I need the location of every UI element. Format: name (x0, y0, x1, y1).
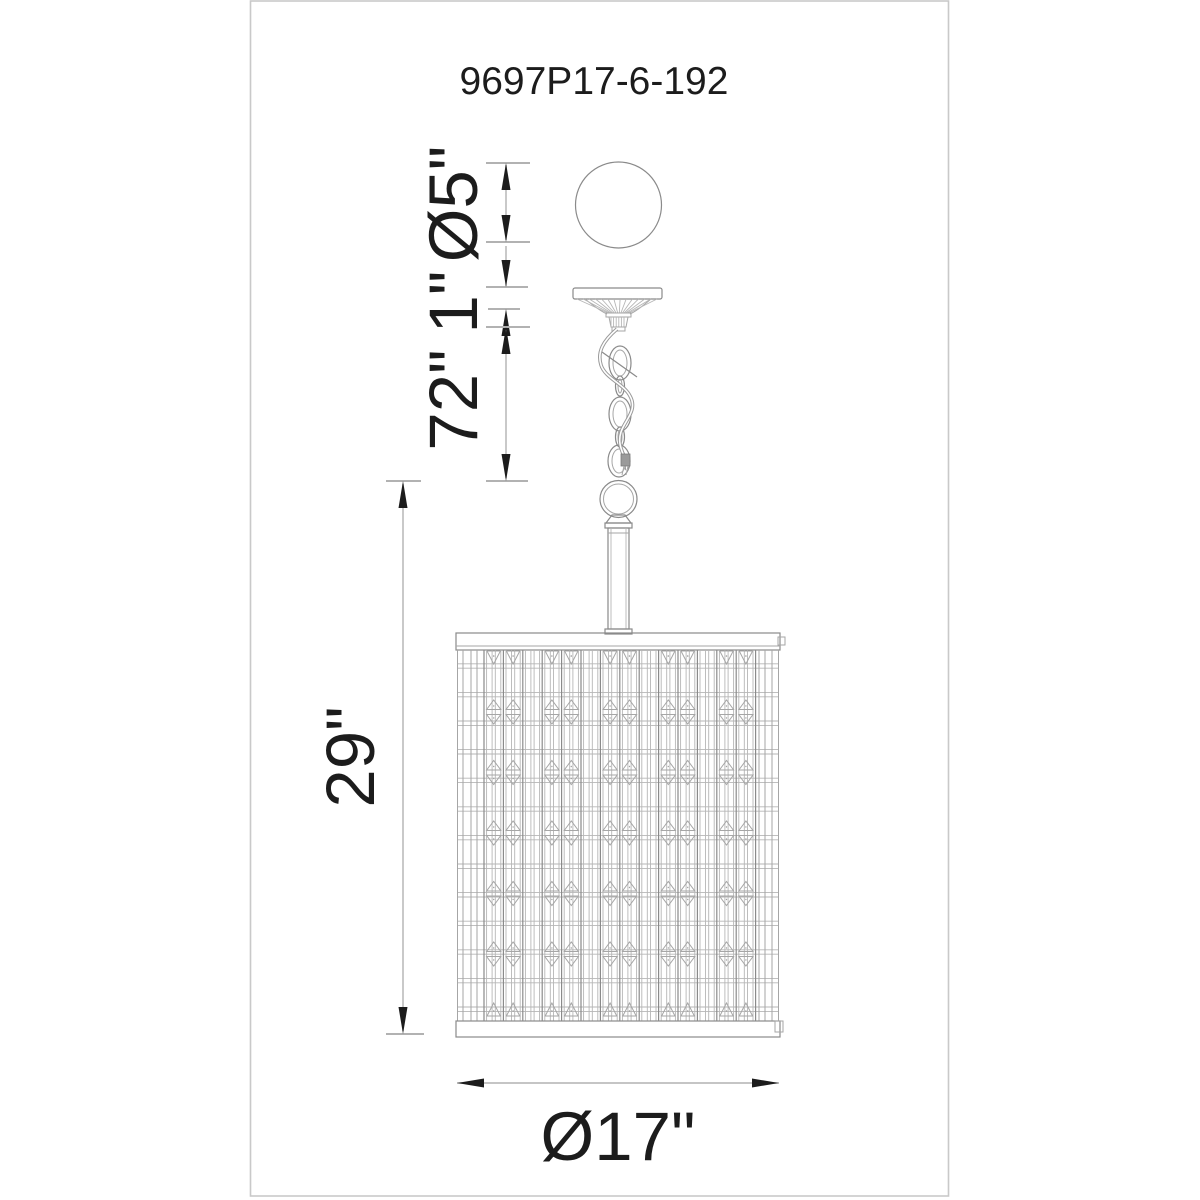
drawing-sheet: 9697P17-6-192 (0, 0, 1200, 1200)
facet-dot (668, 778, 669, 779)
crystal-top-chevron (623, 651, 636, 664)
dim-arrow-right (752, 1079, 779, 1088)
crystal-diamond-upper (506, 821, 520, 831)
facet-dot (493, 1010, 495, 1012)
crystal-top-chevron (487, 651, 500, 664)
crystal-diamond-upper (681, 821, 695, 831)
facet-dot (609, 838, 610, 839)
crystal-diamond-lower (545, 957, 559, 967)
facet-dot (493, 705, 494, 706)
facet-dot (668, 717, 669, 718)
facet-dot (571, 887, 572, 888)
facet-dot (551, 899, 552, 900)
facet-dot (512, 959, 513, 960)
crystal-diamond-lower (487, 775, 501, 785)
hang-ring-outer (600, 481, 637, 518)
facet-dot (629, 705, 630, 706)
facet-dot (629, 1010, 631, 1012)
chain-link (609, 397, 631, 431)
facet-dot (512, 705, 513, 706)
facet-dot (609, 705, 610, 706)
facet-dot (551, 887, 552, 888)
facet-dot (726, 838, 727, 839)
facet-dot (571, 705, 572, 706)
facet-dot (551, 959, 552, 960)
crystal-diamond-upper (564, 882, 578, 892)
canopy-flute-line (583, 299, 609, 313)
crystal-diamond-lower (603, 957, 617, 967)
dim-label-fixture-height: 29" (312, 706, 389, 807)
facet-dot (493, 717, 494, 718)
crystal-diamond-upper (739, 761, 753, 771)
crystal-diamond-upper (487, 700, 501, 710)
facet-dot (551, 838, 552, 839)
crystal-diamond-lower (739, 957, 753, 967)
facet-dot (609, 959, 610, 960)
facet-dot (726, 959, 727, 960)
facet-dot (745, 826, 746, 827)
facet-dot (609, 655, 611, 657)
cord-ferrule (621, 454, 630, 466)
crystal-top-chevron (681, 651, 694, 664)
facet-dot (745, 1010, 747, 1012)
crystal-bottom-chevron (739, 1003, 752, 1016)
crystal-diamond-upper (622, 761, 636, 771)
facet-dot (571, 826, 572, 827)
dimension-chain-length (486, 327, 530, 481)
facet-dot (668, 655, 670, 657)
crystal-diamond-lower (487, 957, 501, 967)
dim-label-chain-length: 72" (415, 349, 492, 450)
dim-label-shade-diameter: Ø17" (541, 1098, 696, 1175)
hanging-chain (600, 329, 637, 477)
facet-dot (726, 655, 728, 657)
canopy-flute-line (629, 299, 657, 313)
crystal-diamond-upper (739, 700, 753, 710)
facet-dot (571, 899, 572, 900)
dimension-canopy-diameter (486, 163, 530, 242)
crystal-bottom-chevron (623, 1003, 636, 1016)
facet-dot (687, 947, 688, 948)
crystal-diamond-lower (622, 957, 636, 967)
crystal-diamond-upper (739, 821, 753, 831)
dim-arrow-left (457, 1079, 484, 1088)
facet-dot (493, 887, 494, 888)
facet-dot (745, 959, 746, 960)
facet-dot (551, 655, 553, 657)
crystal-top-chevron (545, 651, 558, 664)
facet-dot (745, 655, 747, 657)
crystal-diamond-lower (681, 957, 695, 967)
crystal-diamond-lower (545, 715, 559, 725)
facet-dot (609, 826, 610, 827)
crystal-diamond-upper (603, 700, 617, 710)
facet-dot (687, 705, 688, 706)
crystal-diamond-upper (487, 761, 501, 771)
crystal-diamond-lower (564, 775, 578, 785)
canopy-side-view (573, 288, 662, 331)
crystal-bottom-chevron (662, 1003, 675, 1016)
facet-dot (512, 766, 513, 767)
crystal-diamond-lower (681, 775, 695, 785)
facet-dot (687, 826, 688, 827)
facet-dot (629, 717, 630, 718)
facet-dot (512, 947, 513, 948)
facet-dot (726, 766, 727, 767)
facet-dot (726, 717, 727, 718)
crystal-diamond-upper (603, 821, 617, 831)
facet-dot (609, 778, 610, 779)
facet-dot (629, 838, 630, 839)
crystal-diamond-lower (603, 775, 617, 785)
crystal-bottom-chevron (681, 1003, 694, 1016)
crystal-diamond-lower (719, 775, 733, 785)
facet-dot (571, 838, 572, 839)
ring-collar (605, 523, 632, 528)
facet-dot (668, 947, 669, 948)
facet-dot (629, 899, 630, 900)
shade-bottom-band-clip (775, 1021, 783, 1032)
chain-link (609, 346, 631, 380)
facet-dot (551, 705, 552, 706)
crystal-diamond-upper (681, 882, 695, 892)
crystal-diamond-upper (661, 882, 675, 892)
dimension-canopy-height (486, 246, 528, 336)
facet-dot (668, 1010, 670, 1012)
facet-dot (629, 947, 630, 948)
canopy-flute-line (619, 299, 620, 313)
canopy-fluting (577, 299, 657, 313)
facet-dot (687, 838, 688, 839)
crystal-diamond-lower (506, 775, 520, 785)
facet-dot (668, 826, 669, 827)
crystal-diamond-upper (661, 821, 675, 831)
shade-bottom-band (456, 1021, 780, 1037)
crystal-grid (457, 650, 779, 1021)
crystal-diamond-upper (487, 882, 501, 892)
crystal-diamond-upper (506, 700, 520, 710)
facet-dot (609, 947, 610, 948)
crystal-top-chevron (506, 651, 519, 664)
crystal-diamond-lower (564, 715, 578, 725)
facet-dot (551, 947, 552, 948)
facet-dot (609, 1010, 611, 1012)
facet-dot (668, 899, 669, 900)
facet-dot (551, 1010, 553, 1012)
facet-dot (745, 766, 746, 767)
facet-dot (571, 778, 572, 779)
crystal-diamond-upper (487, 821, 501, 831)
crystal-diamond-lower (739, 775, 753, 785)
socket-ribs (611, 317, 624, 327)
crystal-diamond-upper (622, 821, 636, 831)
crystal-diamond-upper (681, 761, 695, 771)
facet-dot (687, 778, 688, 779)
crystal-top-chevron (720, 651, 733, 664)
facet-dot (668, 959, 669, 960)
crystal-diamond-upper (681, 700, 695, 710)
facet-dot (551, 766, 552, 767)
product-code-text: 9697P17-6-192 (460, 60, 729, 103)
crystal-diamond-upper (506, 882, 520, 892)
canopy-socket-collar (606, 313, 631, 317)
facet-dot (726, 899, 727, 900)
pendant-spec-drawing: 9697P17-6-192 (0, 0, 1200, 1200)
crystal-diamond-lower (622, 715, 636, 725)
crystal-diamond-lower (719, 957, 733, 967)
shade-top-band (456, 633, 780, 650)
crystal-diamond-lower (719, 715, 733, 725)
crystal-diamond-lower (661, 775, 675, 785)
crystal-shade (456, 633, 785, 1037)
dim-label-canopy-height: 1" (415, 271, 492, 334)
facet-dot (493, 899, 494, 900)
facet-dot (726, 778, 727, 779)
dim-arrow-down (502, 215, 511, 242)
crystal-diamond-upper (603, 761, 617, 771)
facet-dot (512, 887, 513, 888)
ring-cup (606, 515, 631, 523)
facet-dot (609, 766, 610, 767)
crystal-top-chevron (565, 651, 578, 664)
facet-dot (493, 947, 494, 948)
facet-dot (493, 838, 494, 839)
facet-dot (745, 838, 746, 839)
crystal-diamond-upper (564, 821, 578, 831)
facet-dot (745, 705, 746, 706)
crystal-bottom-chevron (565, 1003, 578, 1016)
chain-link-inner (613, 350, 627, 376)
dim-arrow-down (502, 454, 511, 481)
facet-dot (687, 717, 688, 718)
crystal-diamond-lower (564, 957, 578, 967)
facet-dot (571, 766, 572, 767)
facet-dot (551, 826, 552, 827)
facet-dot (687, 655, 689, 657)
facet-dot (726, 887, 727, 888)
dimension-fixture-height (386, 481, 424, 1034)
crystal-diamond-upper (564, 700, 578, 710)
crystal-diamond-upper (661, 761, 675, 771)
facet-dot (745, 899, 746, 900)
facet-dot (745, 717, 746, 718)
facet-dot (629, 959, 630, 960)
crystal-diamond-lower (739, 715, 753, 725)
facet-dot (609, 887, 610, 888)
facet-dot (571, 655, 573, 657)
crystal-diamond-upper (719, 821, 733, 831)
facet-dot (668, 766, 669, 767)
crystal-diamond-lower (506, 715, 520, 725)
crystal-diamond-upper (603, 882, 617, 892)
crystal-diamond-upper (739, 882, 753, 892)
facet-dot (512, 899, 513, 900)
facet-dot (493, 959, 494, 960)
facet-dot (668, 887, 669, 888)
facet-dot (726, 826, 727, 827)
dim-label-canopy-diameter: Ø5" (415, 146, 492, 263)
facet-dot (493, 766, 494, 767)
facet-dot (512, 717, 513, 718)
facet-dot (629, 778, 630, 779)
facet-dot (745, 887, 746, 888)
facet-dot (726, 705, 727, 706)
dim-arrow-up (502, 163, 511, 190)
facet-dot (629, 887, 630, 888)
crystal-top-chevron (662, 651, 675, 664)
facet-dot (687, 887, 688, 888)
crystal-diamond-upper (719, 761, 733, 771)
facet-dot (493, 778, 494, 779)
crystal-diamond-upper (545, 882, 559, 892)
crystal-diamond-upper (719, 700, 733, 710)
crystal-bottom-chevron (545, 1003, 558, 1016)
crystal-diamond-upper (545, 700, 559, 710)
facet-dot (687, 959, 688, 960)
sheet-border (251, 1, 949, 1196)
crystal-diamond-upper (564, 761, 578, 771)
facet-dot (745, 947, 746, 948)
crystal-bottom-chevron (603, 1003, 616, 1016)
facet-dot (551, 778, 552, 779)
crystal-diamond-lower (622, 775, 636, 785)
crystal-bottom-chevron (487, 1003, 500, 1016)
canopy-plate (573, 288, 662, 299)
facet-dot (571, 947, 572, 948)
crystal-bottom-chevron (506, 1003, 519, 1016)
dim-arrow-up (399, 481, 408, 508)
hang-ring-inner (604, 484, 634, 514)
facet-dot (687, 766, 688, 767)
crystal-diamond-lower (603, 715, 617, 725)
crystal-diamond-lower (506, 957, 520, 967)
facet-dot (629, 826, 630, 827)
facet-dot (609, 717, 610, 718)
crystal-diamond-upper (506, 761, 520, 771)
crystal-diamond-lower (681, 715, 695, 725)
facet-dot (629, 766, 630, 767)
canopy-top-view-circle (576, 162, 662, 248)
facet-dot (571, 717, 572, 718)
facet-dot (726, 1010, 728, 1012)
facet-dot (668, 705, 669, 706)
facet-dot (609, 899, 610, 900)
crystal-diamond-lower (487, 715, 501, 725)
crystal-diamond-upper (661, 700, 675, 710)
crystal-diamond-upper (545, 821, 559, 831)
facet-dot (493, 655, 495, 657)
facet-dot (512, 778, 513, 779)
facet-dot (571, 1010, 573, 1012)
crystal-diamond-lower (661, 715, 675, 725)
facet-dot (668, 838, 669, 839)
dim-arrow-down (502, 260, 511, 287)
facet-dot (512, 826, 513, 827)
facet-dot (493, 826, 494, 827)
facet-dot (726, 947, 727, 948)
crystal-diamond-lower (661, 957, 675, 967)
crystal-diamond-upper (719, 882, 733, 892)
facet-dot (512, 655, 514, 657)
dimension-shade-diameter (457, 1079, 779, 1088)
facet-dot (512, 1010, 514, 1012)
dim-arrow-down (399, 1007, 408, 1034)
crystal-diamond-lower (545, 775, 559, 785)
facet-dot (687, 1010, 689, 1012)
crystal-bottom-chevron (720, 1003, 733, 1016)
crystal-diamond-upper (622, 700, 636, 710)
facet-dot (687, 899, 688, 900)
crystal-diamond-upper (545, 761, 559, 771)
facet-dot (629, 655, 631, 657)
facet-dot (512, 838, 513, 839)
crystal-diamond-upper (622, 882, 636, 892)
crystal-top-chevron (603, 651, 616, 664)
crystal-top-chevron (739, 651, 752, 664)
shade-top-band-clip (778, 637, 785, 645)
facet-dot (745, 778, 746, 779)
facet-dot (571, 959, 572, 960)
facet-dot (551, 717, 552, 718)
suspension-assembly (600, 481, 637, 635)
